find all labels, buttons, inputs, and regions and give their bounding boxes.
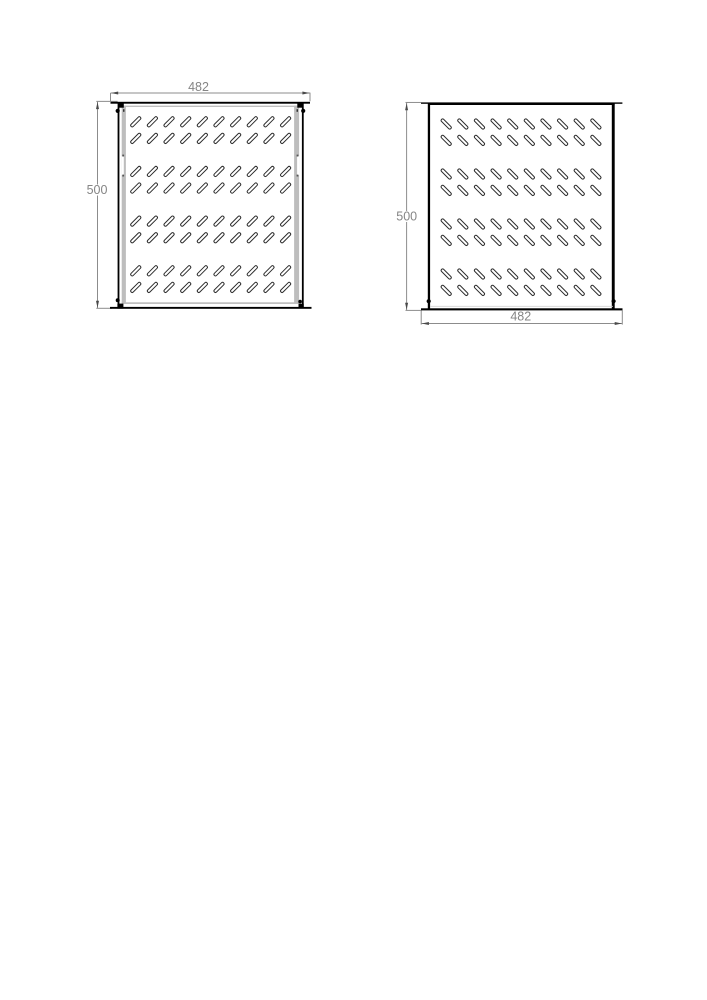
svg-text:500: 500 — [87, 183, 108, 197]
svg-text:500: 500 — [396, 209, 417, 223]
svg-text:482: 482 — [188, 80, 209, 94]
svg-text:482: 482 — [510, 309, 531, 323]
